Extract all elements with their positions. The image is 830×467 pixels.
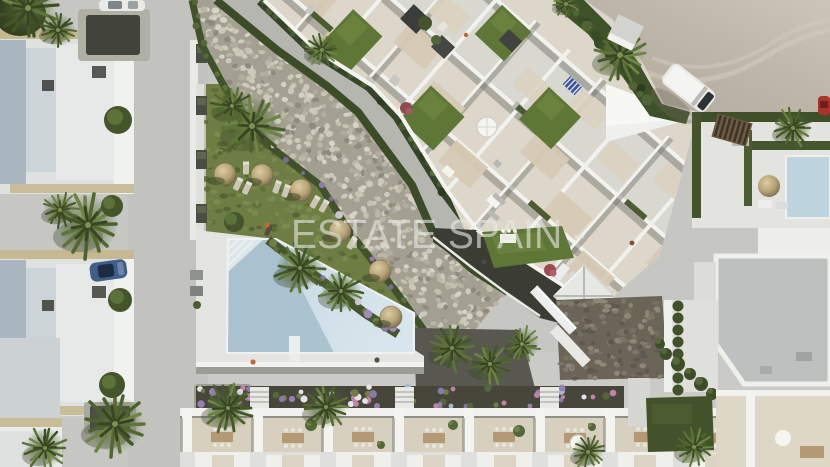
- svg-text:ESTATE SPAIN -: ESTATE SPAIN -: [291, 211, 586, 257]
